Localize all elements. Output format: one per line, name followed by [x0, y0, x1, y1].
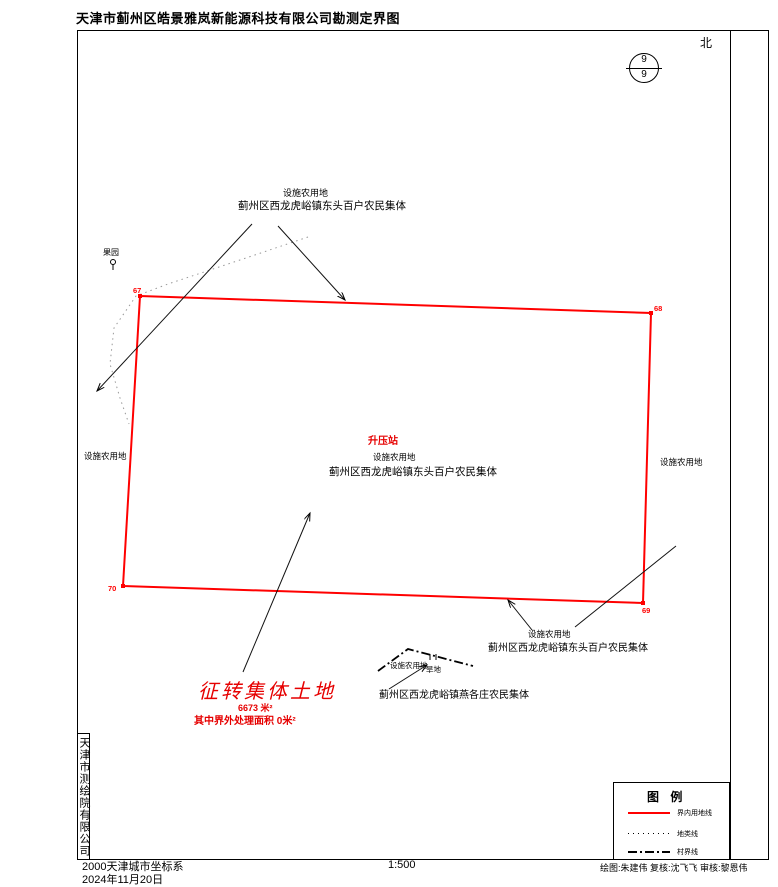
center-parcel-owner: 蓟州区西龙虎峪镇东头百户农民集体 — [329, 464, 497, 479]
bottom-mid-parcel-land-type: 设施农用地 — [390, 660, 428, 671]
north-label: 北 — [700, 34, 712, 51]
legend-title: 图 例 — [647, 788, 686, 805]
map-frame-right-divider — [730, 30, 731, 860]
dry-land-label: 旱地 — [426, 664, 441, 675]
survey-map-page: 天津市蓟州区皓景雅岚新能源科技有限公司勘测定界图 天津市测绘院有限公司 北 9 … — [0, 0, 778, 887]
agency-name: 天津市测绘院有限公司 — [78, 737, 90, 857]
left-parcel-land-type: 设施农用地 — [84, 450, 127, 462]
corner-label-68: 68 — [654, 304, 662, 313]
page-title: 天津市蓟州区皓景雅岚新能源科技有限公司勘测定界图 — [76, 8, 400, 27]
credits: 绘图:朱建伟 复核:沈飞飞 审核:黎恩伟 — [600, 861, 748, 874]
corner-label-69: 69 — [642, 606, 650, 615]
acquisition-title: 征转集体土地 — [198, 675, 336, 704]
bottom-mid-parcel-owner: 蓟州区西龙虎峪镇燕各庄农民集体 — [379, 686, 529, 701]
legend-label-boundary-line: 界内用地线 — [677, 808, 712, 818]
top-parcel-owner: 蓟州区西龙虎峪镇东头百户农民集体 — [238, 198, 406, 213]
map-frame — [77, 30, 769, 860]
acquisition-outside-area: 其中界外处理面积 0米² — [194, 712, 296, 727]
orchard-label: 果园 — [103, 247, 119, 258]
bottom-right-parcel-owner: 蓟州区西龙虎峪镇东头百户农民集体 — [488, 639, 648, 654]
sheet-number-top: 9 — [629, 54, 659, 65]
map-scale: 1:500 — [388, 859, 416, 871]
map-date: 2024年11月20日 — [82, 871, 163, 887]
station-label: 升压站 — [368, 432, 398, 447]
legend-sample-boundary-line — [628, 812, 670, 814]
center-parcel-land-type: 设施农用地 — [373, 451, 416, 463]
corner-label-67: 67 — [133, 286, 141, 295]
sheet-number-bottom: 9 — [629, 69, 659, 80]
corner-label-70: 70 — [108, 584, 116, 593]
legend-sample-land-type-line — [628, 833, 670, 834]
right-parcel-land-type: 设施农用地 — [660, 456, 703, 468]
legend-label-land-type-line: 地类线 — [677, 829, 698, 839]
legend-label-village-line: 村界线 — [677, 847, 698, 857]
legend-sample-village-line — [628, 851, 670, 853]
